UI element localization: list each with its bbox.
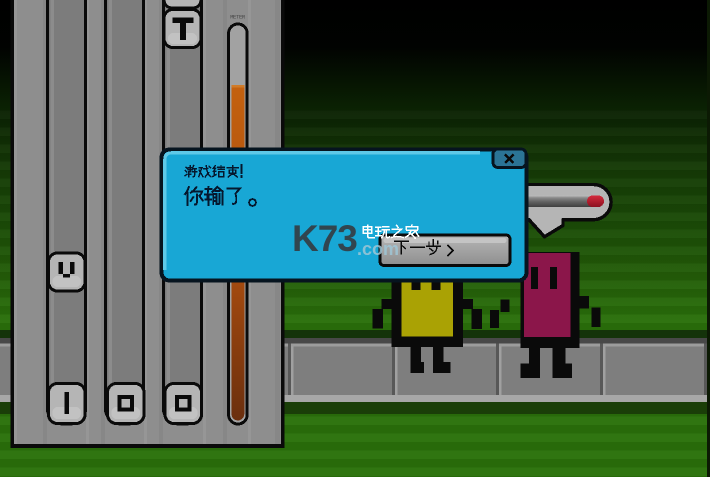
svg-text:METER: METER xyxy=(230,14,246,21)
svg-text:K73: K73 xyxy=(292,218,357,259)
svg-text:.com: .com xyxy=(357,239,399,259)
